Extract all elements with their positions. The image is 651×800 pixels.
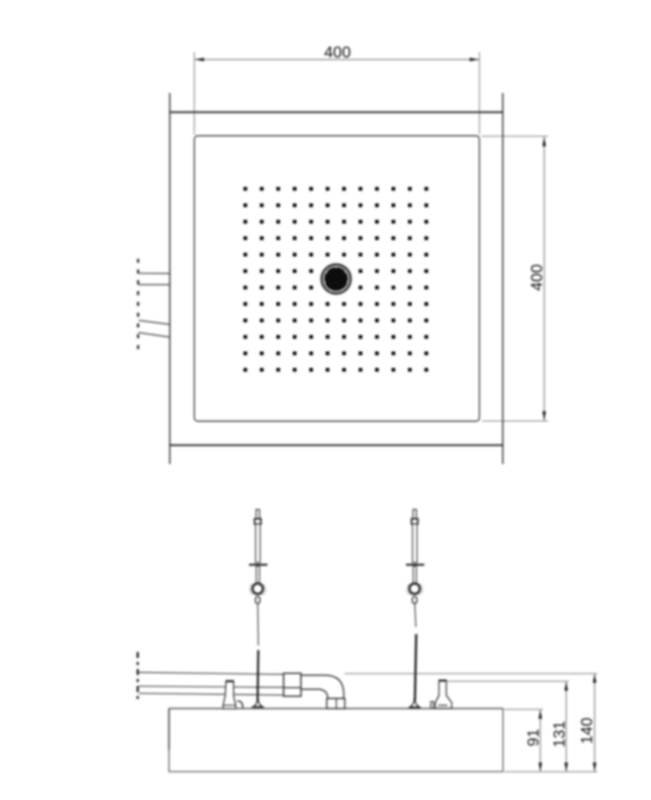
svg-text:400: 400 (529, 264, 546, 291)
svg-text:400: 400 (324, 45, 351, 62)
svg-text:91: 91 (526, 729, 543, 747)
svg-text:131: 131 (552, 721, 569, 748)
svg-text:140: 140 (579, 717, 596, 744)
